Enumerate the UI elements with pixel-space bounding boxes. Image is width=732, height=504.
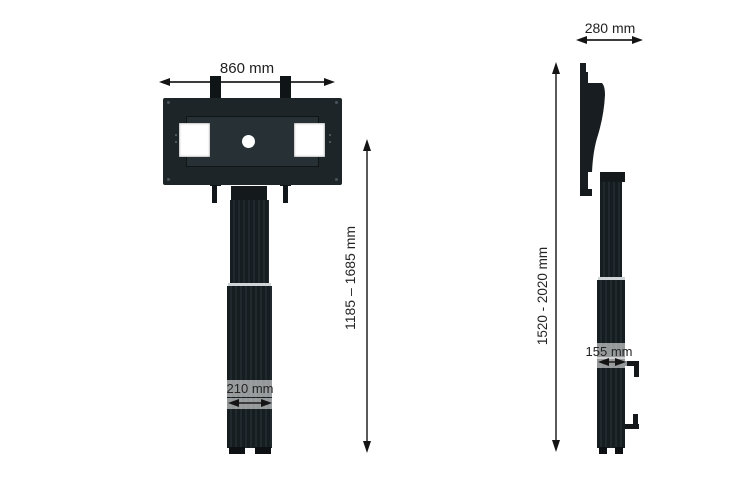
rail-pin-right xyxy=(283,186,288,203)
arrowhead-right-icon xyxy=(615,358,626,366)
mount-bracket-profile xyxy=(588,83,606,172)
side-height-dimension-label: 1520 - 2020 mm xyxy=(535,247,551,345)
column-top-bracket xyxy=(231,186,267,201)
arrowhead-right-icon xyxy=(632,36,643,44)
front-height-dimension-label: 1185 – 1685 mm xyxy=(342,226,358,330)
side-depth-dimension-line xyxy=(585,39,634,41)
screen-top-notch xyxy=(586,63,589,72)
column-foot-rear xyxy=(615,447,623,454)
column-upper-side xyxy=(600,182,622,278)
screw-hole xyxy=(329,134,331,136)
side-depth-dimension-label: 280 mm xyxy=(577,20,643,36)
screw-hole xyxy=(167,101,170,104)
plate-cutout-left xyxy=(179,123,210,157)
column-width-dimension-label: 210 mm xyxy=(224,382,276,396)
column-lower-front xyxy=(227,286,272,448)
cable-hook-lower xyxy=(625,424,639,429)
front-height-dimension-line xyxy=(366,148,368,444)
screw-hole xyxy=(335,101,338,104)
front-width-dimension-line xyxy=(168,81,326,83)
plate-cutout-right xyxy=(294,123,325,157)
arrowhead-left-icon xyxy=(576,36,587,44)
screen-panel-side xyxy=(580,63,588,195)
plate-center-hole xyxy=(242,135,255,148)
arrowhead-left-icon xyxy=(228,399,239,407)
rail-pin-left xyxy=(212,186,217,203)
arrowhead-left-icon xyxy=(159,78,170,86)
column-foot-right xyxy=(255,447,271,454)
screen-bottom-clamp xyxy=(580,189,592,196)
screw-hole xyxy=(329,141,331,143)
arrowhead-right-icon xyxy=(261,399,272,407)
screw-hole xyxy=(175,141,177,143)
arrowhead-up-icon xyxy=(552,62,560,74)
screw-hole xyxy=(175,134,177,136)
column-upper-front xyxy=(230,200,269,284)
arrowhead-down-icon xyxy=(363,441,371,453)
arrowhead-left-icon xyxy=(598,358,609,366)
arrowhead-down-icon xyxy=(552,440,560,452)
screw-hole xyxy=(335,178,338,181)
bracket-foot xyxy=(600,172,625,182)
cable-hook-upper-arm xyxy=(634,361,639,377)
side-height-dimension-line xyxy=(555,71,557,443)
arrowhead-up-icon xyxy=(363,139,371,151)
arrowhead-right-icon xyxy=(324,78,335,86)
column-foot-left xyxy=(229,447,245,454)
front-width-dimension-label: 860 mm xyxy=(160,61,334,77)
column-foot-front xyxy=(599,447,607,454)
technical-drawing-canvas: 860 mm 210 mm xyxy=(0,0,732,504)
screw-hole xyxy=(167,178,170,181)
